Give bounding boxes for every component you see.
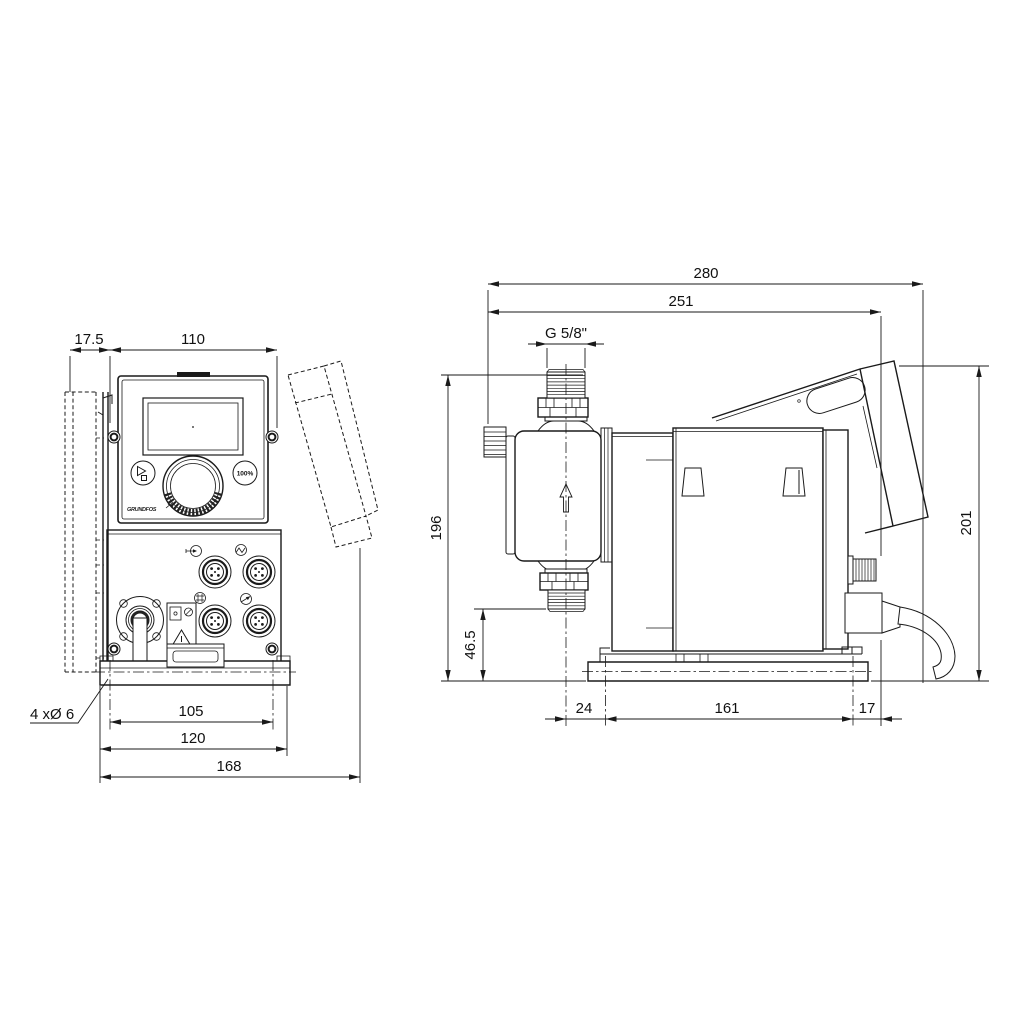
drawing-canvas: 100% GRUNDFOS [0,0,1024,1024]
dim-side-total-height: 201 [958,510,975,535]
screw [266,643,278,655]
dim-front-hole-pitch: 105 [178,703,203,720]
cable-gland [848,556,876,584]
screw [108,431,120,443]
connector-level-icon [195,593,206,604]
screw [108,643,120,655]
connector-port[interactable] [243,556,275,588]
pump-body [601,428,848,651]
control-panel: 100% GRUNDFOS [118,372,268,523]
head-adapter-plate [601,428,612,562]
front-view: 100% GRUNDFOS [30,331,378,783]
dim-front-base-width: 120 [180,730,205,747]
technical-drawing: 100% GRUNDFOS [0,0,1024,1024]
dim-side-height-valve: 46.5 [462,630,479,659]
motor-housing [673,428,823,651]
vent-valve-knob[interactable] [484,427,506,457]
signal-connectors [186,545,275,638]
connector-port[interactable] [243,605,275,637]
dim-side-connection-thread: G 5/8" [545,325,587,342]
dim-front-total-width: 168 [216,758,241,775]
end-cap [823,430,848,649]
connector-bus-icon [241,594,252,605]
discharge-fitting [538,370,588,422]
capacity-button-label: 100% [237,471,254,478]
connector-port[interactable] [199,605,231,637]
dosing-head [484,421,601,571]
head-flange [506,436,515,554]
dim-front-panel-width: 110 [181,331,205,348]
dim-side-rear-offset: 17 [859,700,876,717]
dim-side-hole-pitch: 161 [714,700,739,717]
mid-housing [612,433,673,651]
side-view: 280 251 G 5/8" 196 46.5 201 24 161 17 [428,265,989,728]
panel-top-tab [177,372,210,377]
connector-input-icon [186,546,202,557]
dim-side-front-offset: 24 [576,700,593,717]
dim-side-total-depth: 280 [693,265,718,282]
dim-side-height-connection: 196 [428,515,445,540]
dim-front-holes: 4 xØ 6 [30,706,74,723]
wall-mounting-plate [65,392,112,672]
suction-fitting [540,569,588,612]
connector-pulse-icon [236,545,247,556]
svg-text:GRUNDFOS: GRUNDFOS [127,507,157,513]
connector-port[interactable] [199,556,231,588]
dashed-control-cube [288,361,378,547]
pressure-relief-valve[interactable] [117,597,164,671]
dim-side-body-depth: 251 [668,293,693,310]
screw [266,431,278,443]
dim-front-offset: 17.5 [74,331,103,348]
mounting-rail [167,644,224,667]
